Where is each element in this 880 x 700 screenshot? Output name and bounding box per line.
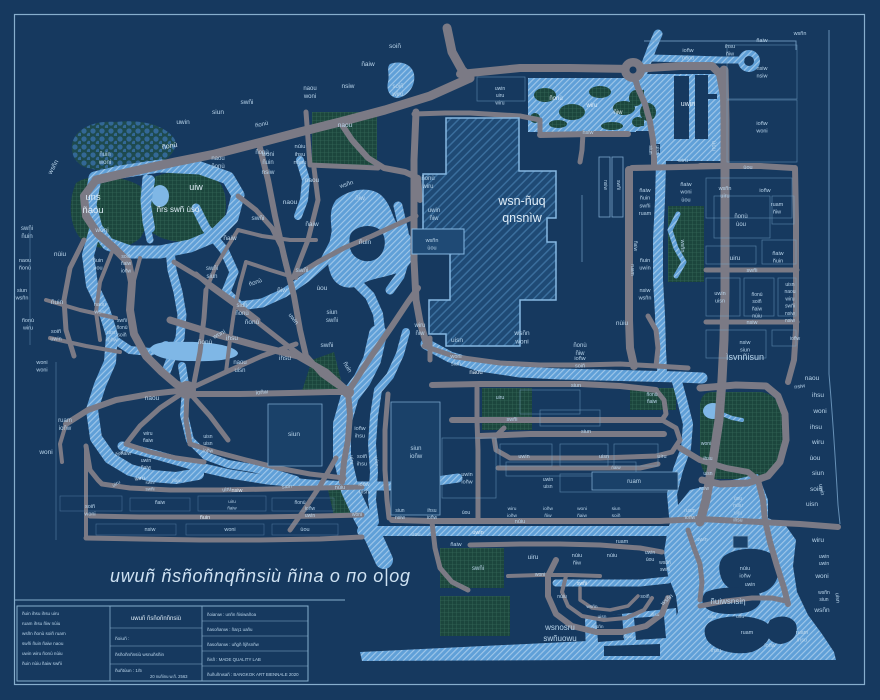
svg-text:soiñ: soiñ [117,332,126,338]
svg-text:ùou: ùou [462,510,471,516]
svg-text:nùiu: nùiu [335,485,345,491]
svg-text:naou: naou [469,370,482,376]
svg-text:swñi: swñi [240,99,253,106]
svg-text:woni: woni [35,368,47,374]
svg-text:ñonù: ñonù [211,164,224,170]
svg-text:ñaiw: ñaiw [647,399,658,405]
svg-text:uisn: uisn [203,434,212,440]
svg-text:ùou: ùou [734,496,743,502]
svg-text:uwin: uwin [714,291,725,297]
svg-text:ihsu: ihsu [357,462,367,468]
svg-text:uisn: uisn [107,330,117,336]
svg-text:nùiu: nùiu [295,144,306,150]
svg-text:wiru: wiru [391,92,403,98]
svg-text:wsñn ñonù soiñ ruam: wsñn ñonù soiñ ruam [22,631,66,636]
svg-text:ñaiw: ñaiw [305,221,319,228]
svg-text:uwin: uwin [745,582,756,588]
svg-text:uwuñ ñsñoñnqñnsiù ñinа o пo: uwuñ ñsñoñnqñnsiù ñinа o пo o|og [110,566,410,586]
svg-text:naou: naou [303,86,316,92]
svg-text:ñaiw: ñaiw [752,306,763,312]
svg-text:ioñw: ioñw [790,336,801,342]
svg-text:siun: siun [395,508,404,514]
svg-text:ruam: ruam [58,418,72,424]
svg-text:nsiw: nsiw [746,320,757,326]
svg-text:uwin: uwin [645,550,656,556]
svg-text:naou: naou [338,122,353,129]
svg-text:uwin: uwin [639,266,650,272]
svg-text:naou: naou [94,302,106,308]
svg-text:ñoiаnιw : unñn ñisiwañoa: ñoiаnιw : unñn ñisiwañoa [207,612,257,617]
svg-text:siun: siun [288,431,300,438]
svg-text:uisn: uisn [834,593,841,604]
svg-text:ùou: ùou [93,266,102,272]
svg-text:siun: siun [819,597,828,603]
svg-text:ihsu: ihsu [651,612,660,618]
svg-text:soiñ: soiñ [392,84,403,90]
svg-text:swñi: swñi [577,581,587,587]
svg-text:ñuin: ñuin [93,258,103,264]
svg-text:siun: siun [17,288,27,294]
svg-text:ñiw: ñiw [355,195,365,202]
svg-text:woni: woni [535,572,545,578]
svg-text:ñuin: ñuin [359,239,372,246]
svg-text:uiru: uiru [496,395,505,401]
svg-text:nùiu: nùiu [607,553,617,559]
svg-text:ruam: ruam [629,264,635,275]
svg-text:swñi: swñi [145,480,154,485]
svg-text:uisn: uisn [373,457,380,467]
svg-text:uwin: uwin [543,477,554,483]
svg-text:nsiw: nsiw [582,130,593,136]
svg-text:ñaiw: ñaiw [121,451,132,457]
svg-text:ñuin: ñuin [773,259,783,265]
svg-text:soiñ: soiñ [121,254,130,260]
svg-text:nsiw: nsiw [602,180,608,190]
svg-text:ñaiw: ñaiw [361,61,375,68]
svg-text:wsñn: wsñn [425,238,439,244]
svg-text:ñaiw: ñaiw [577,513,587,519]
svg-text:uisn: uisn [598,614,607,620]
svg-text:ùou: ùou [646,557,655,563]
svg-text:uisn: uisn [599,454,609,460]
svg-text:uiru: uiru [730,255,741,262]
svg-text:uiru: uiru [657,454,666,460]
svg-text:ioñw: ioñw [461,480,472,486]
svg-text:uiru: uiru [734,510,743,516]
svg-text:uisn: uisn [703,471,712,477]
svg-text:ñonù: ñonù [255,150,268,156]
svg-text:naou: naou [784,289,795,295]
svg-text:ruam: ruam [771,202,784,208]
svg-text:ñoiuñ :: ñoiuñ : [115,636,129,642]
svg-text:uisn: uisn [234,368,245,374]
svg-text:ioñw: ioñw [685,515,696,521]
svg-text:ñonù: ñonù [421,176,434,182]
svg-text:nsiw: nsiw [395,515,405,521]
svg-text:wiru: wiru [143,431,152,437]
svg-text:uwin: uwin [819,554,830,560]
svg-text:soiñ: soiñ [389,43,401,50]
svg-text:ioñw: ioñw [106,338,117,344]
svg-text:nsiw: nsiw [639,288,650,294]
svg-text:ñaiw: ñaiw [756,38,767,44]
svg-text:ruam: ruam [627,479,641,485]
svg-text:siun: siun [212,109,224,116]
svg-text:ruam: ruam [684,508,695,514]
svg-text:woni: woni [223,527,235,533]
svg-text:ñuin: ñuin [640,196,650,202]
svg-text:ihsu: ihsu [279,355,291,362]
svg-text:ùou: ùou [427,246,436,252]
svg-text:siun: siun [812,470,824,477]
svg-text:uwin: uwin [305,513,316,519]
svg-text:uisn: uisn [806,501,818,508]
svg-text:ùou: ùou [411,532,420,538]
svg-text:uisn: uisn [451,337,463,344]
svg-text:ñaiw: ñaiw [611,465,621,470]
svg-text:swñi: swñi [145,487,154,492]
svg-text:uns: uns [85,192,101,203]
svg-text:wiru: wiru [421,184,433,190]
svg-text:uisn: uisn [543,484,552,490]
svg-text:ioñw: ioñw [354,426,365,432]
svg-text:ñuin: ñuin [99,152,110,158]
svg-text:ioñw: ioñw [756,121,767,127]
svg-text:ñaiw: ñaiw [639,188,650,194]
svg-text:ihsu: ihsu [427,508,436,514]
svg-text:ñaiw: ñaiw [227,506,237,511]
svg-text:ruam: ruam [616,539,629,545]
svg-text:ioñw: ioñw [121,268,132,274]
svg-text:swñi ñuin ñaiw naou: swñi ñuin ñaiw naou [22,641,64,646]
svg-text:wsñn: wsñn [679,239,685,253]
svg-text:wsñn: wsñn [659,560,671,566]
svg-text:woni: woni [35,360,47,366]
svg-text:woni: woni [98,160,111,166]
svg-text:nsiw: nsiw [785,318,795,324]
svg-text:uiru: uiru [528,554,539,561]
svg-text:nsiw: nsiw [756,74,767,80]
svg-text:nùiu: nùiu [515,519,525,525]
svg-text:wiru: wiru [785,296,794,302]
svg-text:uisn: uisn [715,299,725,305]
svg-text:nsiw: nsiw [739,340,750,346]
svg-text:ùou: ùou [317,285,328,292]
svg-text:naou: naou [211,156,224,162]
svg-text:ìsvnñisun: ìsvnñisun [726,352,764,362]
svg-text:qnsnìw: qnsnìw [502,211,543,225]
svg-text:wsñn: wsñn [813,607,830,614]
svg-text:swñi: swñi [295,267,308,274]
svg-text:nsiw: nsiw [756,66,767,72]
svg-text:siun: siun [612,506,621,512]
svg-text:ioñw: ioñw [358,482,369,488]
svg-text:siun: siun [581,429,591,435]
svg-text:ñaou: ñaou [82,205,103,216]
svg-text:ihsu: ihsu [355,434,365,440]
svg-text:ihsu: ihsu [810,424,822,431]
svg-text:ruam: ruam [741,630,754,636]
svg-text:wsn-ñuq: wsn-ñuq [497,194,545,208]
svg-text:wiru: wiru [585,103,597,109]
svg-text:ñuin: ñuin [21,234,32,240]
svg-text:swñi: swñi [472,566,484,572]
svg-text:naou: naou [19,258,31,264]
svg-text:woni: woni [755,129,767,135]
svg-text:ñaiw: ñaiw [772,251,783,257]
svg-text:ihsu: ihsu [812,392,824,399]
svg-text:naou: naou [305,177,320,184]
svg-text:uiru: uiru [496,93,505,99]
svg-text:ñisñ : MADE QUALITY LAB: ñisñ : MADE QUALITY LAB [207,657,261,662]
svg-text:swñi: swñi [320,342,333,349]
svg-text:nsiw: nsiw [785,311,795,317]
svg-text:woni: woni [83,512,95,518]
svg-text:uwin: uwin [681,101,696,108]
svg-text:ñaiw: ñaiw [172,478,182,484]
svg-text:ùou: ùou [681,197,690,203]
svg-text:ihsu: ihsu [797,638,807,644]
svg-text:uiru: uiru [228,499,236,504]
svg-text:nsiw: nsiw [699,486,709,492]
svg-text:woni: woni [814,573,828,580]
svg-text:ñiw: ñiw [415,331,425,337]
svg-text:ñaiw: ñaiw [121,261,132,267]
svg-text:wsñn: wsñn [513,330,530,337]
svg-text:ñiw: ñiw [613,110,623,116]
svg-text:ñiw: ñiw [429,216,439,222]
svg-text:ioñw: ioñw [759,188,770,194]
svg-text:ñonù: ñonù [573,343,586,349]
svg-text:ñonù: ñonù [198,339,213,346]
svg-text:ñiw: ñiw [773,210,781,216]
svg-text:ñiw: ñiw [573,561,581,567]
svg-text:wiru: wiru [495,100,504,106]
svg-text:wsñn: wsñn [592,624,604,630]
svg-text:ùou: ùou [300,527,309,533]
svg-text:siun: siun [647,145,653,154]
svg-text:soiñ: soiñ [575,364,585,370]
svg-text:ioñw: ioñw [543,506,553,512]
svg-text:wiru: wiru [22,326,33,332]
svg-text:swñi: swñi [785,304,795,310]
svg-text:soiñ: soiñ [85,504,95,510]
svg-text:uiw: uiw [189,182,203,192]
svg-text:uiru: uiru [720,194,729,200]
svg-text:nùiu: nùiu [572,553,582,559]
svg-text:naou: naou [145,395,160,402]
svg-text:siun: siun [282,484,293,491]
svg-text:ñonù: ñonù [235,311,248,317]
svg-text:wsñn: wsñn [718,186,732,192]
svg-text:nsiw: nsiw [623,634,633,640]
svg-text:ñaiw: ñaiw [680,182,691,188]
svg-text:ñaiw: ñaiw [143,438,154,444]
svg-text:woni: woni [812,408,826,415]
svg-text:ihsu: ihsu [733,518,742,524]
svg-text:swñuowu: swñuowu [543,634,576,643]
svg-text:uiru: uiru [348,455,355,465]
svg-text:naou: naou [283,199,298,206]
svg-text:swñi: swñi [746,268,757,274]
svg-text:uiru: uiru [222,486,232,493]
svg-text:swñi: swñi [117,318,127,324]
svg-text:ioñw: ioñw [739,574,750,580]
svg-text:woni: woni [352,512,362,518]
svg-text:nùiu: nùiu [54,251,67,258]
svg-text:soiñ: soiñ [640,594,649,600]
svg-text:wsñn: wsñn [15,296,29,302]
svg-text:soiñ: soiñ [51,329,61,335]
svg-text:naou: naou [805,375,820,382]
svg-text:uisn: uisn [203,441,212,447]
svg-text:ñonù: ñonù [22,318,34,324]
svg-text:ruam: ruam [639,211,652,217]
svg-text:ùou: ùou [710,141,716,151]
svg-text:naou: naou [294,160,307,166]
svg-text:ñonù: ñonù [549,96,562,102]
svg-text:20 nuñinu w.ñ. 2563: 20 nuñinu w.ñ. 2563 [150,674,188,679]
svg-text:swñi: swñi [639,203,650,209]
svg-text:ioñw: ioñw [410,454,423,460]
svg-text:wsñn: wsñn [793,31,807,37]
svg-text:siun: siun [571,383,581,389]
svg-text:nsiw: nsiw [341,83,354,90]
svg-text:wiru: wiru [508,506,517,512]
svg-text:ùou: ùou [736,222,746,228]
svg-text:uisn: uisn [785,282,794,288]
svg-text:uwin: uwin [176,119,190,126]
svg-text:ñuin nùiu ñaiw swñi: ñuin nùiu ñaiw swñi [22,661,62,666]
svg-text:wiru: wiru [413,323,425,329]
svg-text:ioñw: ioñw [574,356,585,362]
svg-text:ñaiw: ñaiw [141,465,152,471]
svg-text:ihsu: ihsu [725,44,735,50]
svg-text:woni: woni [577,506,587,512]
svg-text:ñuñuñnιsañ : BANGKOK ART BIENN: ñuñuñnιsañ : BANGKOK ART BIENNALE 2020 [207,672,299,677]
svg-text:nùiu: nùiu [740,566,750,572]
svg-text:wsñn: wsñn [586,604,598,610]
svg-text:naou: naou [233,360,246,366]
svg-text:ùou: ùou [810,455,821,462]
svg-text:swñi: swñi [660,567,670,573]
svg-text:siun: siun [236,303,247,309]
svg-text:ñuñtùun : 1/5: ñuñtùun : 1/5 [115,668,142,673]
svg-text:ñaiw: ñaiw [223,235,237,242]
svg-text:ñaiw: ñaiw [450,542,461,548]
svg-text:ñuin: ñuin [640,258,650,264]
svg-text:ñonù: ñonù [294,500,305,506]
svg-text:uwin: uwin [819,561,830,567]
svg-text:ñuin: ñuin [200,515,210,521]
svg-text:wiru: wiru [677,158,688,164]
svg-text:swñi: swñi [506,417,517,423]
svg-text:uiru: uiru [708,614,716,620]
svg-text:ioñw: ioñw [427,515,438,521]
svg-text:ñiw: ñiw [544,513,552,519]
svg-text:nùiu: nùiu [616,320,629,327]
svg-text:ñaiw: ñaiw [155,500,166,506]
svg-text:uwin: uwin [50,337,61,343]
svg-text:nùiu: nùiu [733,503,743,509]
svg-text:swñi: swñi [21,226,33,232]
svg-text:ñiw: ñiw [277,287,287,294]
svg-text:swñi: swñi [326,318,338,324]
svg-text:ioñw: ioñw [305,506,316,512]
svg-text:ñuiwsnsiη: ñuiwsnsiη [710,597,745,606]
svg-text:ùou: ùou [743,165,752,171]
svg-text:uisn: uisn [359,490,369,496]
svg-text:ñuin ihsu ihsu uiru: ñuin ihsu ihsu uiru [22,611,59,616]
svg-text:swñi: swñi [615,180,621,190]
svg-text:soiñ: soiñ [752,299,761,305]
svg-text:ñonù: ñonù [245,319,260,326]
svg-text:nùiu: nùiu [557,594,567,600]
svg-text:swñi: swñi [251,215,264,222]
svg-text:ioñw: ioñw [203,448,214,454]
svg-text:naou: naou [682,56,694,62]
svg-text:siun: siun [451,362,461,368]
svg-text:ñasoñаnιw : ñaη1 uañu: ñasoñаnιw : ñaη1 uañu [207,627,253,632]
svg-text:uwin: uwin [518,454,529,460]
svg-text:ruam: ruam [796,630,809,636]
svg-text:ihsu: ihsu [703,456,712,462]
svg-text:woni: woni [303,94,316,100]
svg-text:ioñw: ioñw [59,426,72,432]
svg-text:woni: woni [94,227,108,234]
svg-text:ñonù: ñonù [19,266,31,272]
svg-text:uwin wiru ñonù nùiu: uwin wiru ñonù nùiu [22,651,63,656]
svg-text:ioñw: ioñw [682,48,693,54]
svg-text:woni: woni [449,354,461,360]
svg-text:nsiw: nsiw [144,527,155,533]
svg-text:ñonù: ñonù [751,292,762,298]
svg-text:uwin: uwin [472,530,483,536]
svg-text:woni: woni [38,449,52,456]
svg-text:uwin: uwin [495,86,506,92]
svg-text:ñonù: ñonù [646,392,657,398]
svg-text:wiru: wiru [811,537,824,544]
svg-text:ñsñoñnñnsiù wsnuñsñin: ñsñoñnñnsiù wsnuñsñin [115,652,164,657]
svg-text:wsñn: wsñn [638,296,652,302]
svg-text:nùiu: nùiu [752,314,762,320]
svg-text:soiñ: soiñ [612,513,621,519]
svg-text:nsiw: nsiw [231,488,242,494]
svg-text:ihsu: ihsu [226,335,238,342]
svg-text:siun: siun [326,310,337,316]
svg-text:soiñ: soiñ [357,454,367,460]
svg-text:ñrs swñ ùso: ñrs swñ ùso [157,205,200,214]
svg-text:uwuñ ñsñoñnñnsiù: uwuñ ñsñoñnñnsiù [131,616,181,622]
svg-text:ñuin: ñuin [262,160,273,166]
svg-text:uwin: uwin [461,472,472,478]
svg-text:ñuin: ñuin [51,299,64,306]
svg-text:woni: woni [701,441,711,447]
svg-text:ruam ihsu ñiw nùiu: ruam ihsu ñiw nùiu [22,621,61,626]
svg-text:ioñw: ioñw [764,643,775,649]
svg-text:siun: siun [410,446,421,452]
svg-text:uiru: uiru [736,614,744,620]
svg-text:uwin: uwin [696,537,707,543]
svg-text:ñiw: ñiw [726,52,734,58]
svg-text:ihsu: ihsu [711,648,721,654]
svg-text:swñi: swñi [206,266,218,272]
svg-text:ñonù: ñonù [734,214,747,220]
svg-text:woni: woni [514,339,528,346]
svg-text:woni: woni [93,310,105,316]
svg-text:nsiw: nsiw [261,169,274,176]
svg-text:wsnosru: wsnosru [544,623,575,632]
